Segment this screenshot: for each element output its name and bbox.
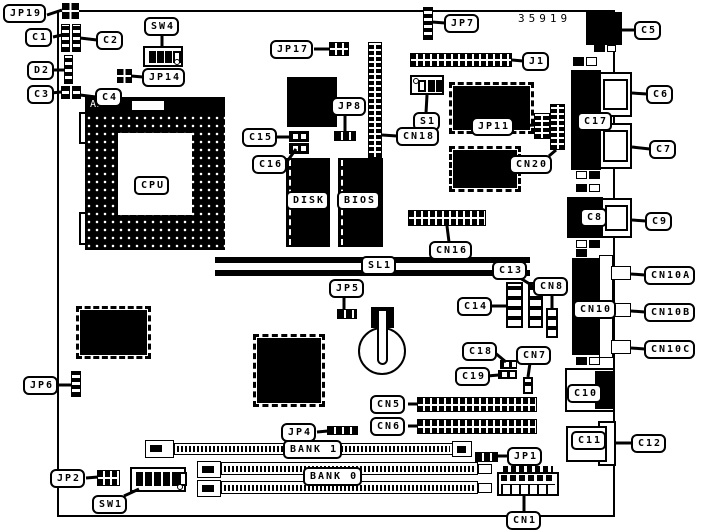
callout-jp6: JP6 (23, 376, 58, 395)
callout-c18: C18 (462, 342, 497, 361)
callout-jp7: JP7 (444, 14, 479, 33)
callout-cn20: CN20 (509, 155, 552, 174)
callout-jp4: JP4 (281, 423, 316, 442)
callout-c16: C16 (252, 155, 287, 174)
callout-jp1: JP1 (507, 447, 542, 466)
callout-j1: J1 (522, 52, 549, 71)
callout-cn16: CN16 (429, 241, 472, 260)
callout-jp11: JP11 (471, 117, 514, 136)
callout-c15: C15 (242, 128, 277, 147)
callout-c9: C9 (645, 212, 672, 231)
callout-cn10b: CN10B (644, 303, 695, 322)
motherboard-diagram: 35919 AMP (0, 0, 705, 530)
callout-cn8: CN8 (533, 277, 568, 296)
callout-cn1: CN1 (506, 511, 541, 530)
leader-lines (0, 0, 705, 530)
callout-c5: C5 (634, 21, 661, 40)
callout-c4: C4 (95, 88, 122, 107)
callout-sw1: SW1 (92, 495, 127, 514)
callout-jp19: JP19 (3, 4, 46, 23)
callout-jp17: JP17 (270, 40, 313, 59)
callout-c3: C3 (27, 85, 54, 104)
callout-d2: D2 (27, 61, 54, 80)
callout-c14: C14 (457, 297, 492, 316)
callout-cn10c: CN10C (644, 340, 695, 359)
callout-sw4: SW4 (144, 17, 179, 36)
callout-jp8: JP8 (331, 97, 366, 116)
callout-cn5: CN5 (370, 395, 405, 414)
callout-cn18: CN18 (396, 127, 439, 146)
callout-cn7: CN7 (516, 346, 551, 365)
callout-c12: C12 (631, 434, 666, 453)
callout-jp5: JP5 (329, 279, 364, 298)
callout-cn6: CN6 (370, 417, 405, 436)
callout-c6: C6 (646, 85, 673, 104)
callout-jp14: JP14 (142, 68, 185, 87)
callout-c19: C19 (455, 367, 490, 386)
callout-cn10a: CN10A (644, 266, 695, 285)
callout-c1: C1 (25, 28, 52, 47)
callout-jp2: JP2 (50, 469, 85, 488)
callout-c13: C13 (492, 261, 527, 280)
callout-c7: C7 (649, 140, 676, 159)
callout-c2: C2 (96, 31, 123, 50)
